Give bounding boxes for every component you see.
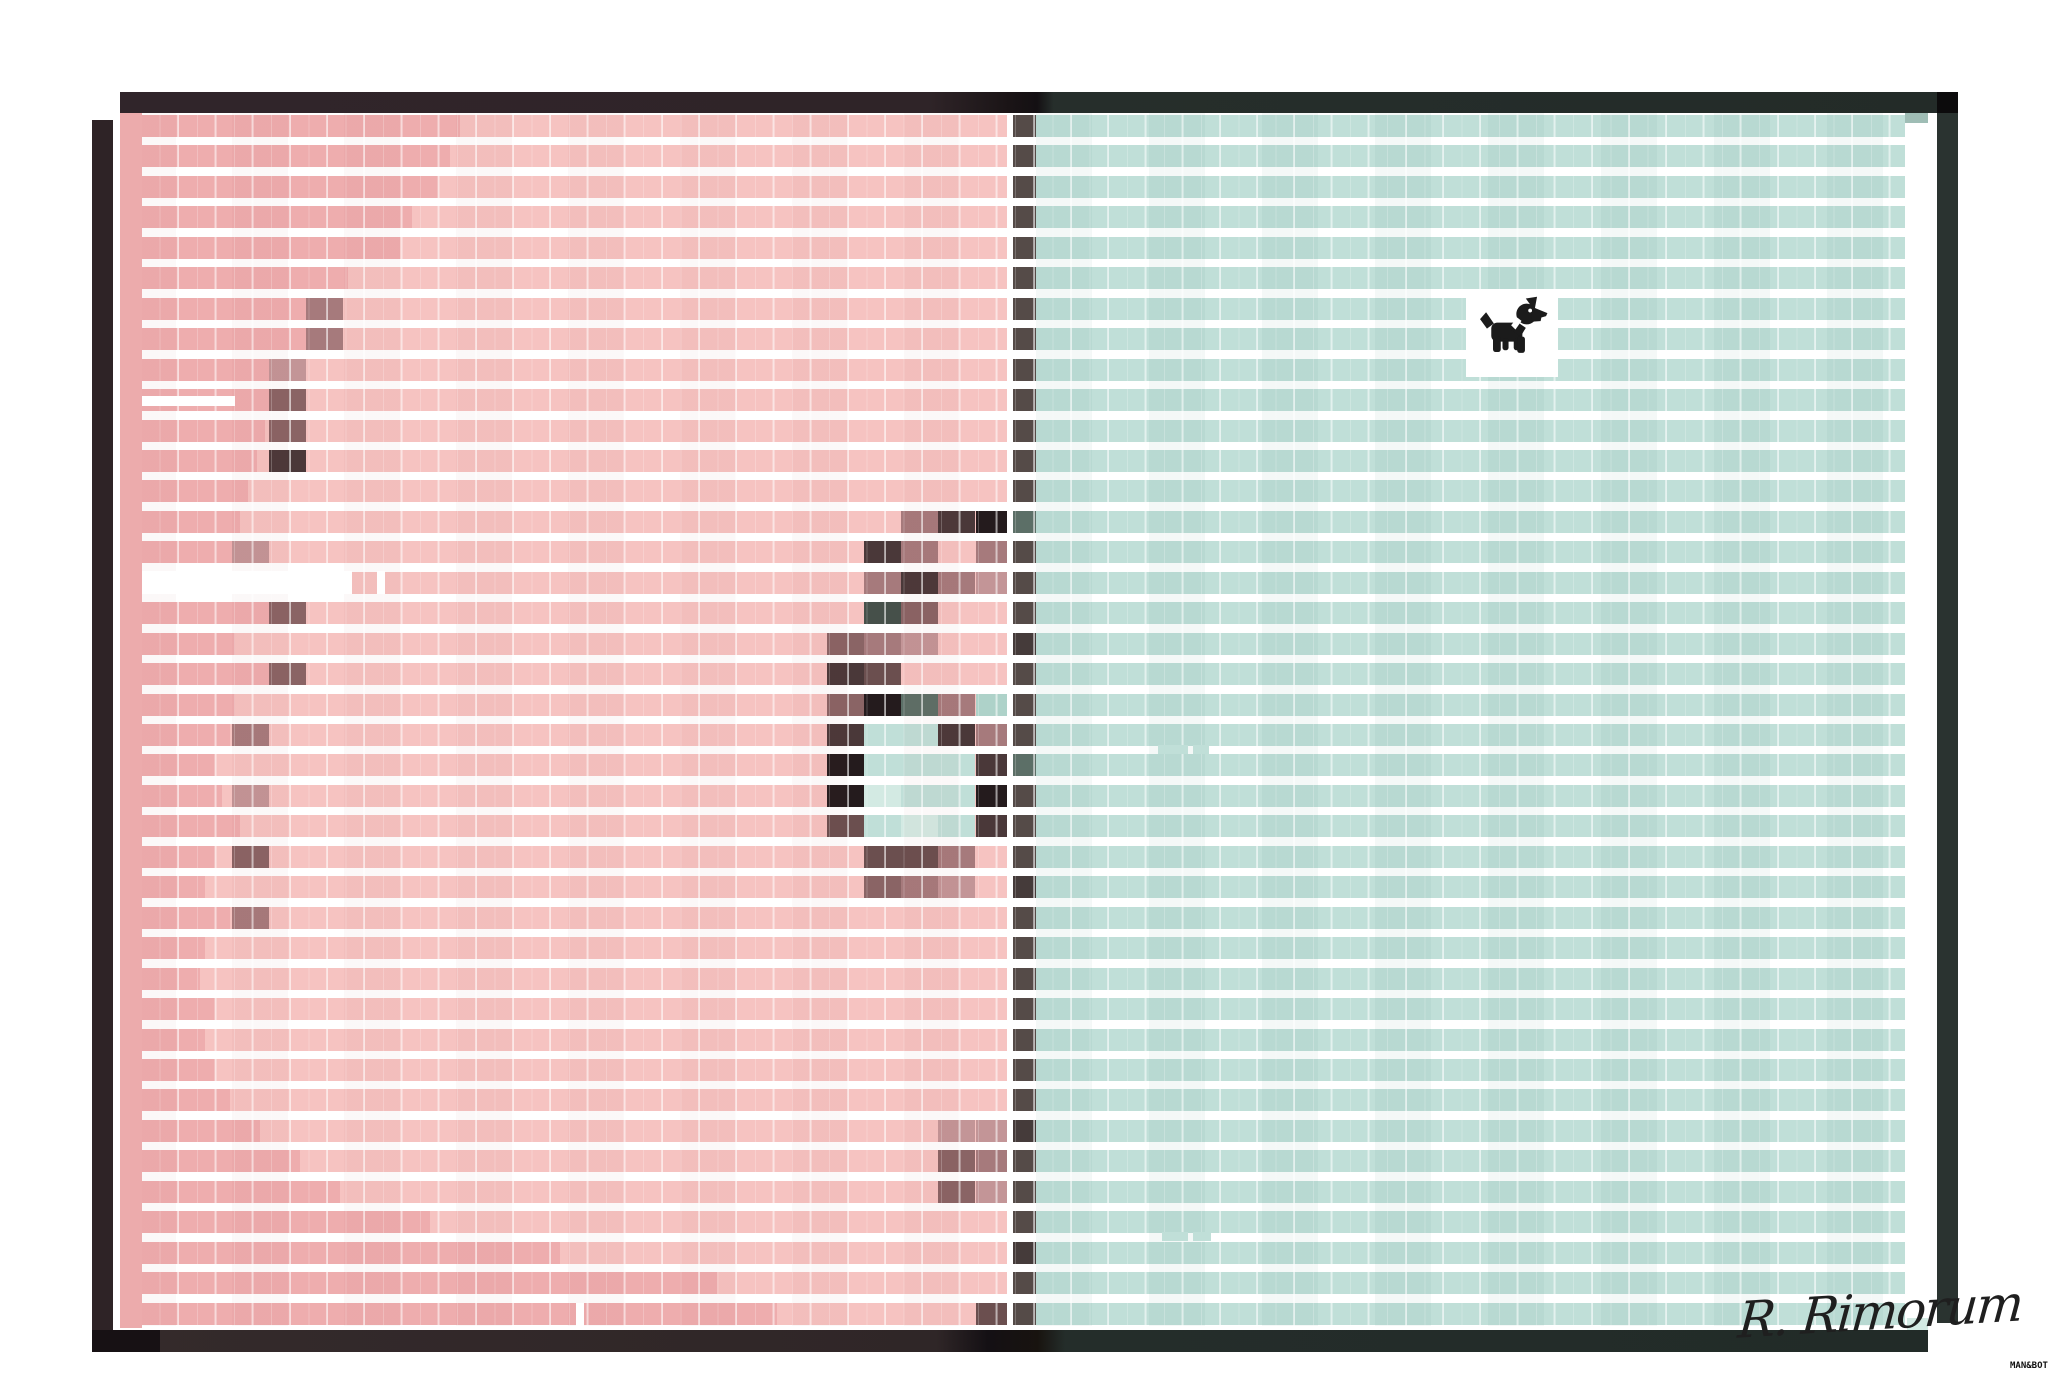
mosaic-row [142, 998, 1905, 1020]
mosaic-cell [864, 633, 901, 655]
mosaic-cell [901, 815, 938, 837]
mosaic-row [142, 815, 1905, 837]
frame-bottom [92, 1330, 1928, 1352]
mosaic-cell [864, 541, 901, 563]
dog-icon [1472, 295, 1552, 371]
glitch-patch [120, 113, 142, 1328]
glitch-patch [377, 571, 385, 594]
mosaic-cell [976, 694, 1007, 716]
mosaic-row [142, 907, 1905, 929]
glitch-patch [1193, 745, 1209, 754]
mosaic-cell [864, 724, 901, 746]
mosaic-row [142, 389, 1905, 411]
pink-column-tint-overlay [120, 113, 1007, 1326]
mosaic-cell [901, 846, 938, 868]
mosaic-row [142, 1242, 1905, 1264]
mosaic-cell [938, 511, 975, 533]
mosaic-row [142, 145, 1905, 167]
mosaic-row [142, 1303, 1905, 1325]
mosaic-row [142, 572, 1905, 594]
mosaic-cell [864, 785, 901, 807]
mosaic-row [142, 359, 1905, 381]
mosaic-cell [864, 754, 901, 776]
mosaic-row [142, 1181, 1905, 1203]
mosaic-row [142, 1059, 1905, 1081]
mosaic-cell [976, 754, 1007, 776]
mosaic-row [142, 541, 1905, 563]
credit-text: MAN&BOT [2010, 1361, 2048, 1371]
mosaic-row [142, 511, 1905, 533]
mosaic-row [142, 450, 1905, 472]
mosaic-cell [232, 846, 269, 868]
artwork-canvas: R. Rimorum MAN&BOT [0, 0, 2048, 1376]
frame-corner_bl [92, 1330, 160, 1352]
mosaic-cell [901, 572, 938, 594]
mosaic-cell [827, 815, 864, 837]
mosaic-cell [269, 450, 306, 472]
glitch-patch [1162, 1232, 1188, 1241]
mosaic-row [142, 1150, 1905, 1172]
mosaic-cell [901, 633, 938, 655]
mosaic-cell [827, 785, 864, 807]
mosaic-cell [976, 572, 1007, 594]
mosaic-cell [827, 663, 864, 685]
frame-top [120, 92, 1958, 113]
mosaic-row [142, 115, 1905, 137]
mosaic-row [142, 602, 1905, 624]
mosaic-cell [269, 389, 306, 411]
mosaic-cell [269, 359, 306, 381]
mosaic-cell [864, 876, 901, 898]
mosaic-cell [827, 724, 864, 746]
mosaic-cell [938, 1150, 975, 1172]
mosaic-cell [864, 572, 901, 594]
mosaic-cell [938, 1120, 975, 1142]
mosaic-row [142, 876, 1905, 898]
glitch-patch [1905, 113, 1928, 123]
mosaic-cell [938, 724, 975, 746]
mosaic-cell [232, 724, 269, 746]
mosaic-row [142, 1211, 1905, 1233]
mosaic-cell [901, 785, 938, 807]
mosaic-row [142, 267, 1905, 289]
major-separators-overlay [142, 113, 1905, 1326]
mosaic-cell [864, 846, 901, 868]
mosaic-row [142, 328, 1905, 350]
mosaic-cell [901, 724, 938, 746]
minor-separators-overlay [142, 113, 1905, 1326]
mosaic-row [142, 694, 1905, 716]
mosaic-row [142, 754, 1905, 776]
mosaic-cell [901, 754, 938, 776]
mosaic-cell [269, 602, 306, 624]
mosaic-row [142, 1029, 1905, 1051]
mosaic-cell [976, 815, 1007, 837]
mosaic-cell [269, 420, 306, 442]
mosaic-row [142, 1272, 1905, 1294]
mosaic-row [142, 724, 1905, 746]
mosaic-cell [864, 815, 901, 837]
mosaic-cell [976, 1181, 1007, 1203]
mosaic-row [142, 237, 1905, 259]
mosaic-row [142, 176, 1905, 198]
glitch-patch [576, 1303, 584, 1326]
mosaic-cell [901, 876, 938, 898]
mosaic-cell [938, 876, 975, 898]
mosaic-cell [976, 511, 1007, 533]
frame-corner_tr [1937, 92, 1958, 113]
mosaic-cell [976, 724, 1007, 746]
mosaic-cell [938, 572, 975, 594]
mosaic-row [142, 206, 1905, 228]
mosaic-cell [938, 1181, 975, 1203]
mosaic-cell [864, 694, 901, 716]
mosaic-cell [938, 785, 975, 807]
mosaic-row [142, 633, 1905, 655]
mosaic-cell [901, 511, 938, 533]
mosaic-cell [269, 663, 306, 685]
glitch-patch [1158, 745, 1188, 754]
mosaic-cell [976, 1303, 1007, 1325]
mosaic-cell [976, 541, 1007, 563]
mosaic-cell [827, 633, 864, 655]
mosaic-cell [938, 694, 975, 716]
mosaic-row [142, 937, 1905, 959]
mosaic-row [142, 480, 1905, 502]
mosaic-cell [827, 694, 864, 716]
mosaic-cell [938, 815, 975, 837]
glitch-patch [142, 396, 235, 406]
glitch-patch [142, 571, 352, 594]
mosaic-cell [232, 541, 269, 563]
mosaic-cell [864, 602, 901, 624]
mosaic-row [142, 420, 1905, 442]
mosaic-row [142, 1089, 1905, 1111]
mosaic-row [142, 968, 1905, 990]
mosaic-cell [306, 298, 343, 320]
mosaic-cell [901, 541, 938, 563]
mosaic-row [142, 785, 1905, 807]
mosaic-cell [976, 785, 1007, 807]
mosaic-row [142, 1120, 1905, 1142]
mosaic-cell [864, 663, 901, 685]
mosaic-row [142, 846, 1905, 868]
mosaic-cell [976, 1120, 1007, 1142]
mosaic-row [142, 663, 1905, 685]
mosaic-cell [232, 785, 269, 807]
mosaic-cell [901, 602, 938, 624]
mosaic-row [142, 298, 1905, 320]
glitch-patch [1193, 1232, 1211, 1241]
mosaic-cell [938, 846, 975, 868]
mosaic-cell [976, 1150, 1007, 1172]
mosaic-cell [232, 907, 269, 929]
mosaic-cell [306, 328, 343, 350]
mosaic-cell [938, 754, 975, 776]
dog-white-box [1466, 289, 1558, 377]
frame-left [92, 120, 113, 1352]
mosaic-cell [901, 694, 938, 716]
frame-right [1937, 92, 1958, 1323]
mosaic-cell [827, 754, 864, 776]
